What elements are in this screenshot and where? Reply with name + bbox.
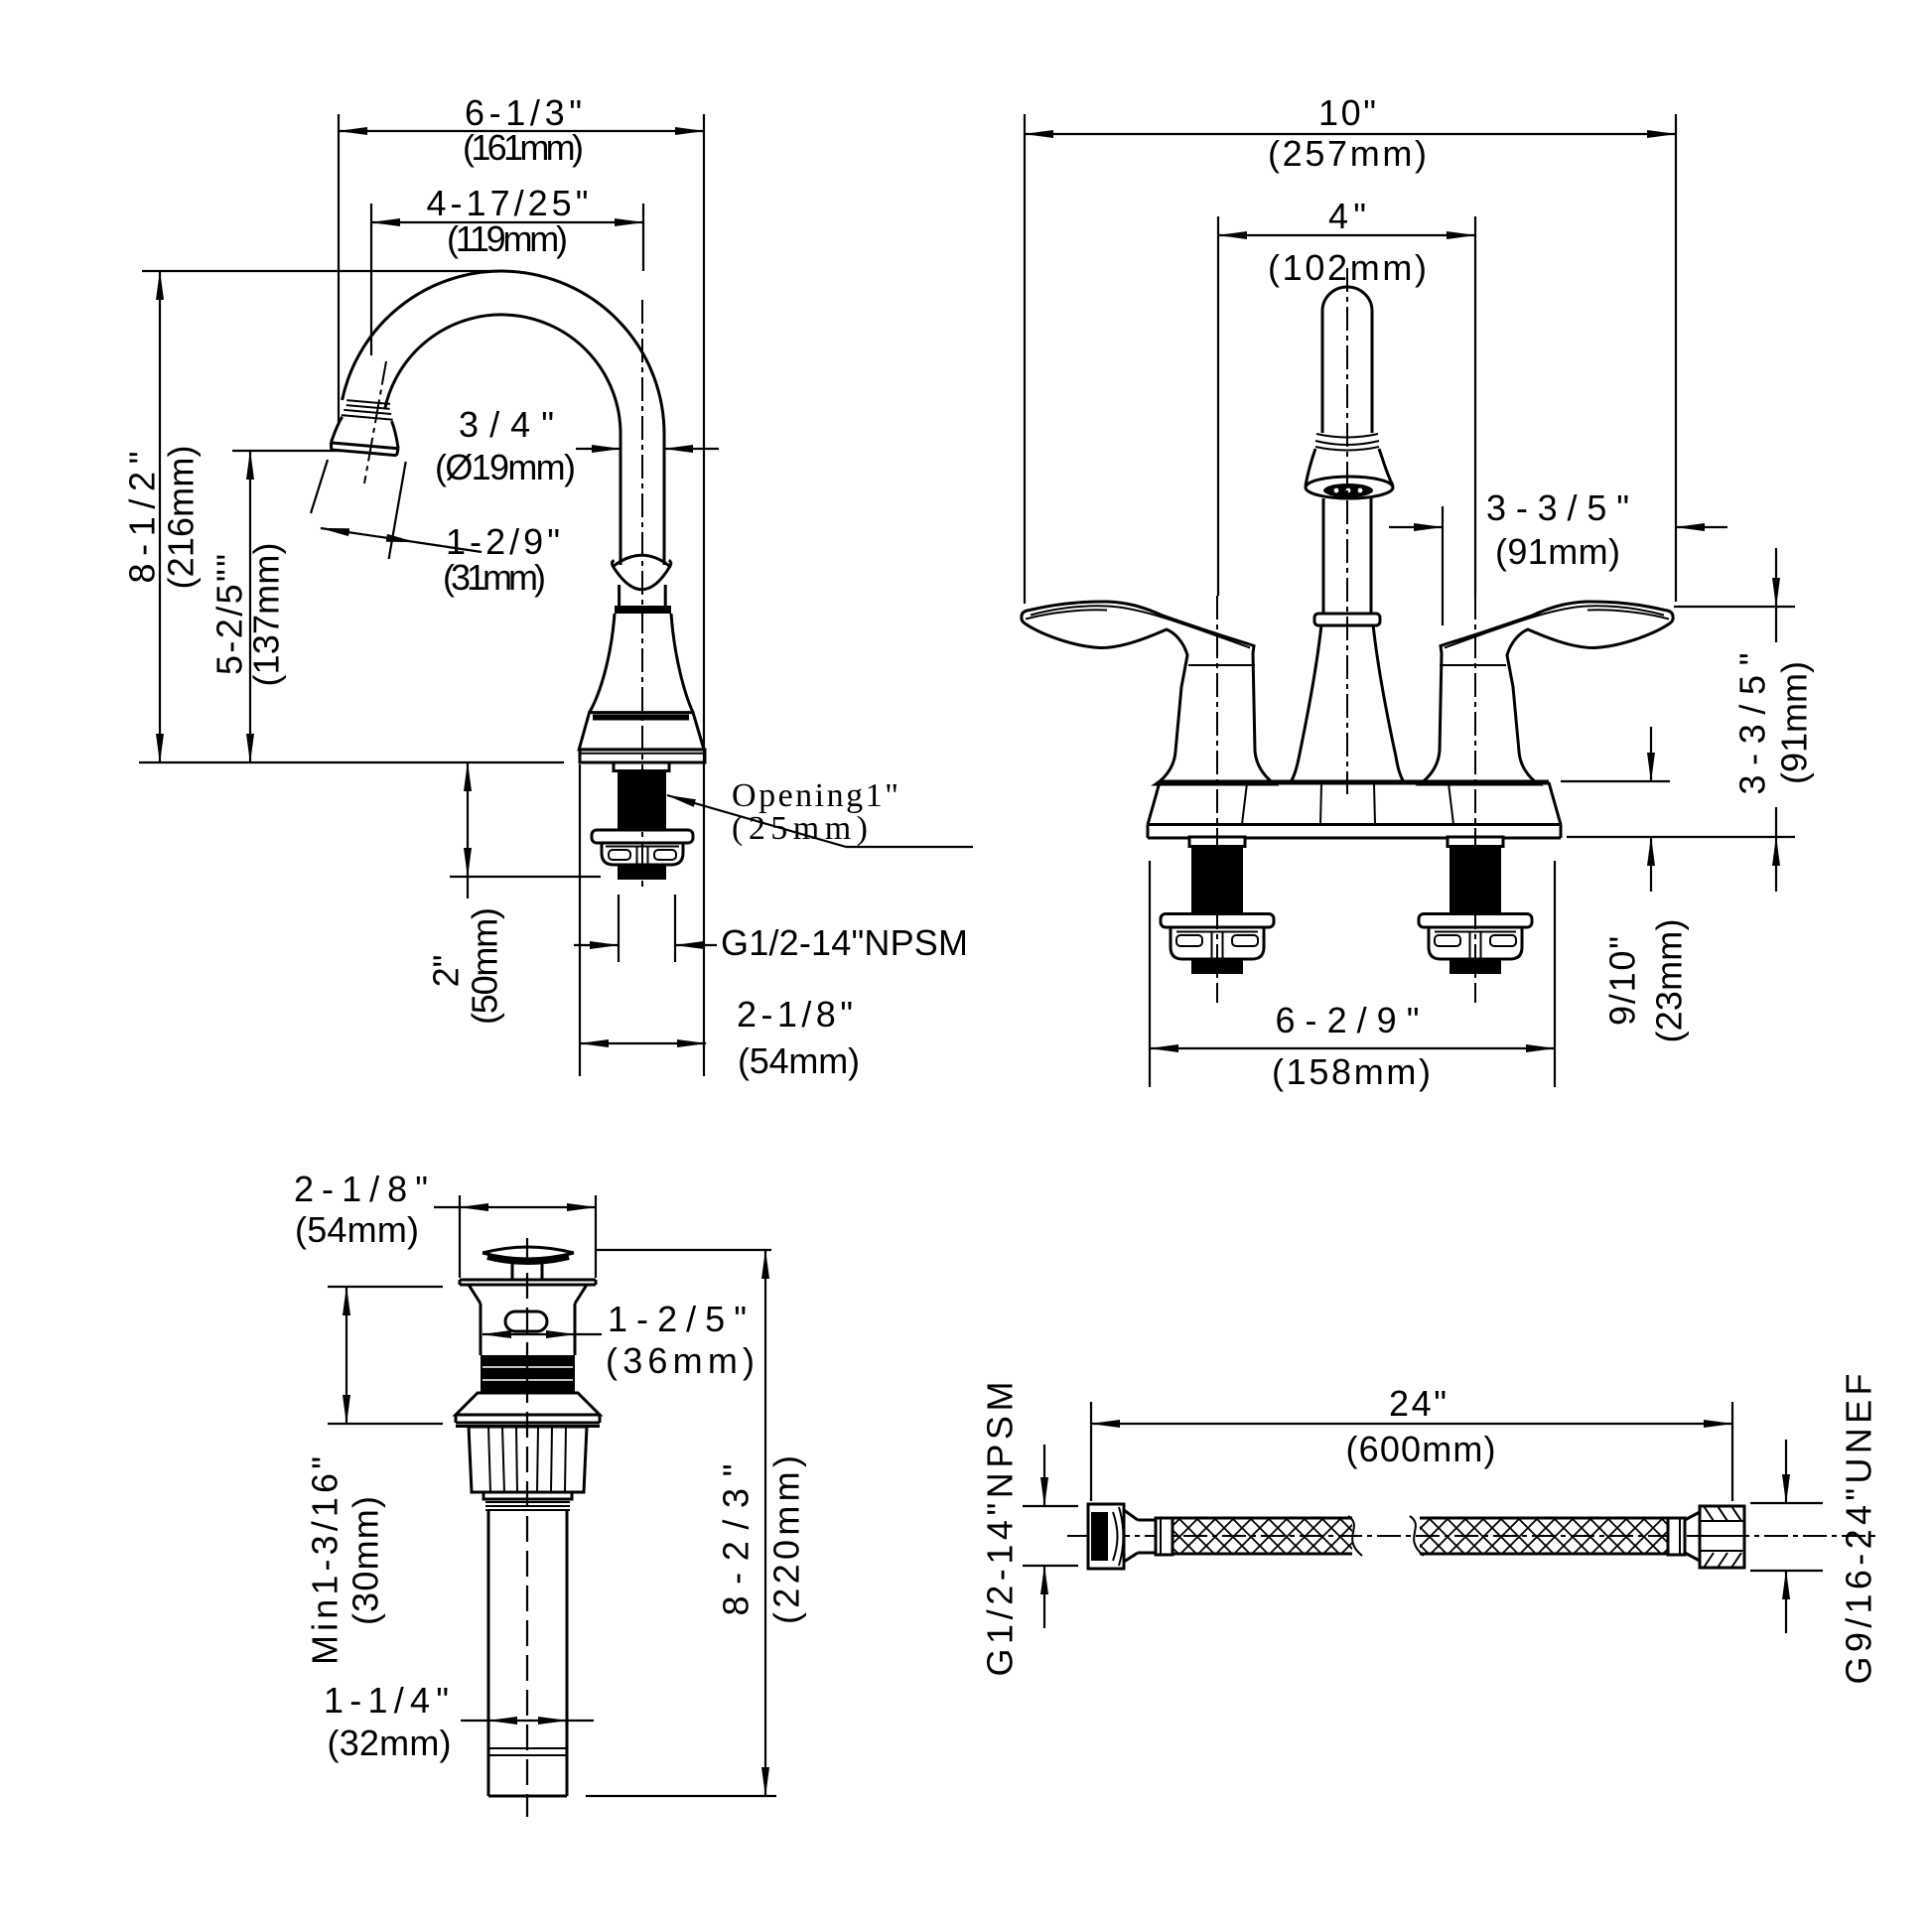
svg-text:10": 10" bbox=[1318, 92, 1376, 133]
svg-text:(119mm): (119mm) bbox=[447, 218, 568, 259]
svg-text:G1/2-14"NPSM: G1/2-14"NPSM bbox=[721, 922, 968, 963]
svg-text:4-17/25": 4-17/25" bbox=[427, 183, 589, 223]
svg-text:(Ø19mm): (Ø19mm) bbox=[435, 447, 576, 487]
svg-text:5-2/5"": 5-2/5"" bbox=[209, 554, 250, 675]
svg-text:(23mm): (23mm) bbox=[1649, 919, 1690, 1043]
svg-text:9/10": 9/10" bbox=[1602, 936, 1643, 1026]
svg-text:(31mm): (31mm) bbox=[443, 557, 546, 598]
svg-text:1-2/9": 1-2/9" bbox=[446, 521, 560, 562]
svg-text:(30mm): (30mm) bbox=[345, 1496, 386, 1625]
svg-text:(54mm): (54mm) bbox=[295, 1209, 419, 1250]
svg-text:(102mm): (102mm) bbox=[1268, 247, 1427, 288]
svg-text:(158mm): (158mm) bbox=[1272, 1051, 1431, 1092]
svg-text:(161mm): (161mm) bbox=[463, 127, 584, 168]
svg-text:24": 24" bbox=[1389, 1383, 1447, 1424]
svg-text:(50mm): (50mm) bbox=[465, 907, 505, 1025]
svg-text:(91mm): (91mm) bbox=[1774, 661, 1815, 784]
svg-text:4": 4" bbox=[1328, 196, 1366, 236]
svg-text:(91mm): (91mm) bbox=[1495, 531, 1620, 572]
svg-text:(25mm): (25mm) bbox=[732, 810, 868, 847]
svg-text:(36mm): (36mm) bbox=[606, 1340, 755, 1381]
svg-text:(32mm): (32mm) bbox=[328, 1723, 452, 1763]
svg-text:(257mm): (257mm) bbox=[1268, 133, 1427, 174]
svg-text:2-1/8": 2-1/8" bbox=[737, 994, 853, 1035]
svg-text:(220mm): (220mm) bbox=[766, 1455, 807, 1624]
svg-text:G1/2-14"NPSM: G1/2-14"NPSM bbox=[980, 1382, 1021, 1677]
svg-text:(54mm): (54mm) bbox=[738, 1040, 860, 1081]
svg-text:(137mm): (137mm) bbox=[246, 543, 287, 687]
svg-text:(216mm): (216mm) bbox=[161, 446, 202, 590]
svg-text:(600mm): (600mm) bbox=[1346, 1429, 1496, 1469]
svg-text:2": 2" bbox=[426, 955, 467, 988]
